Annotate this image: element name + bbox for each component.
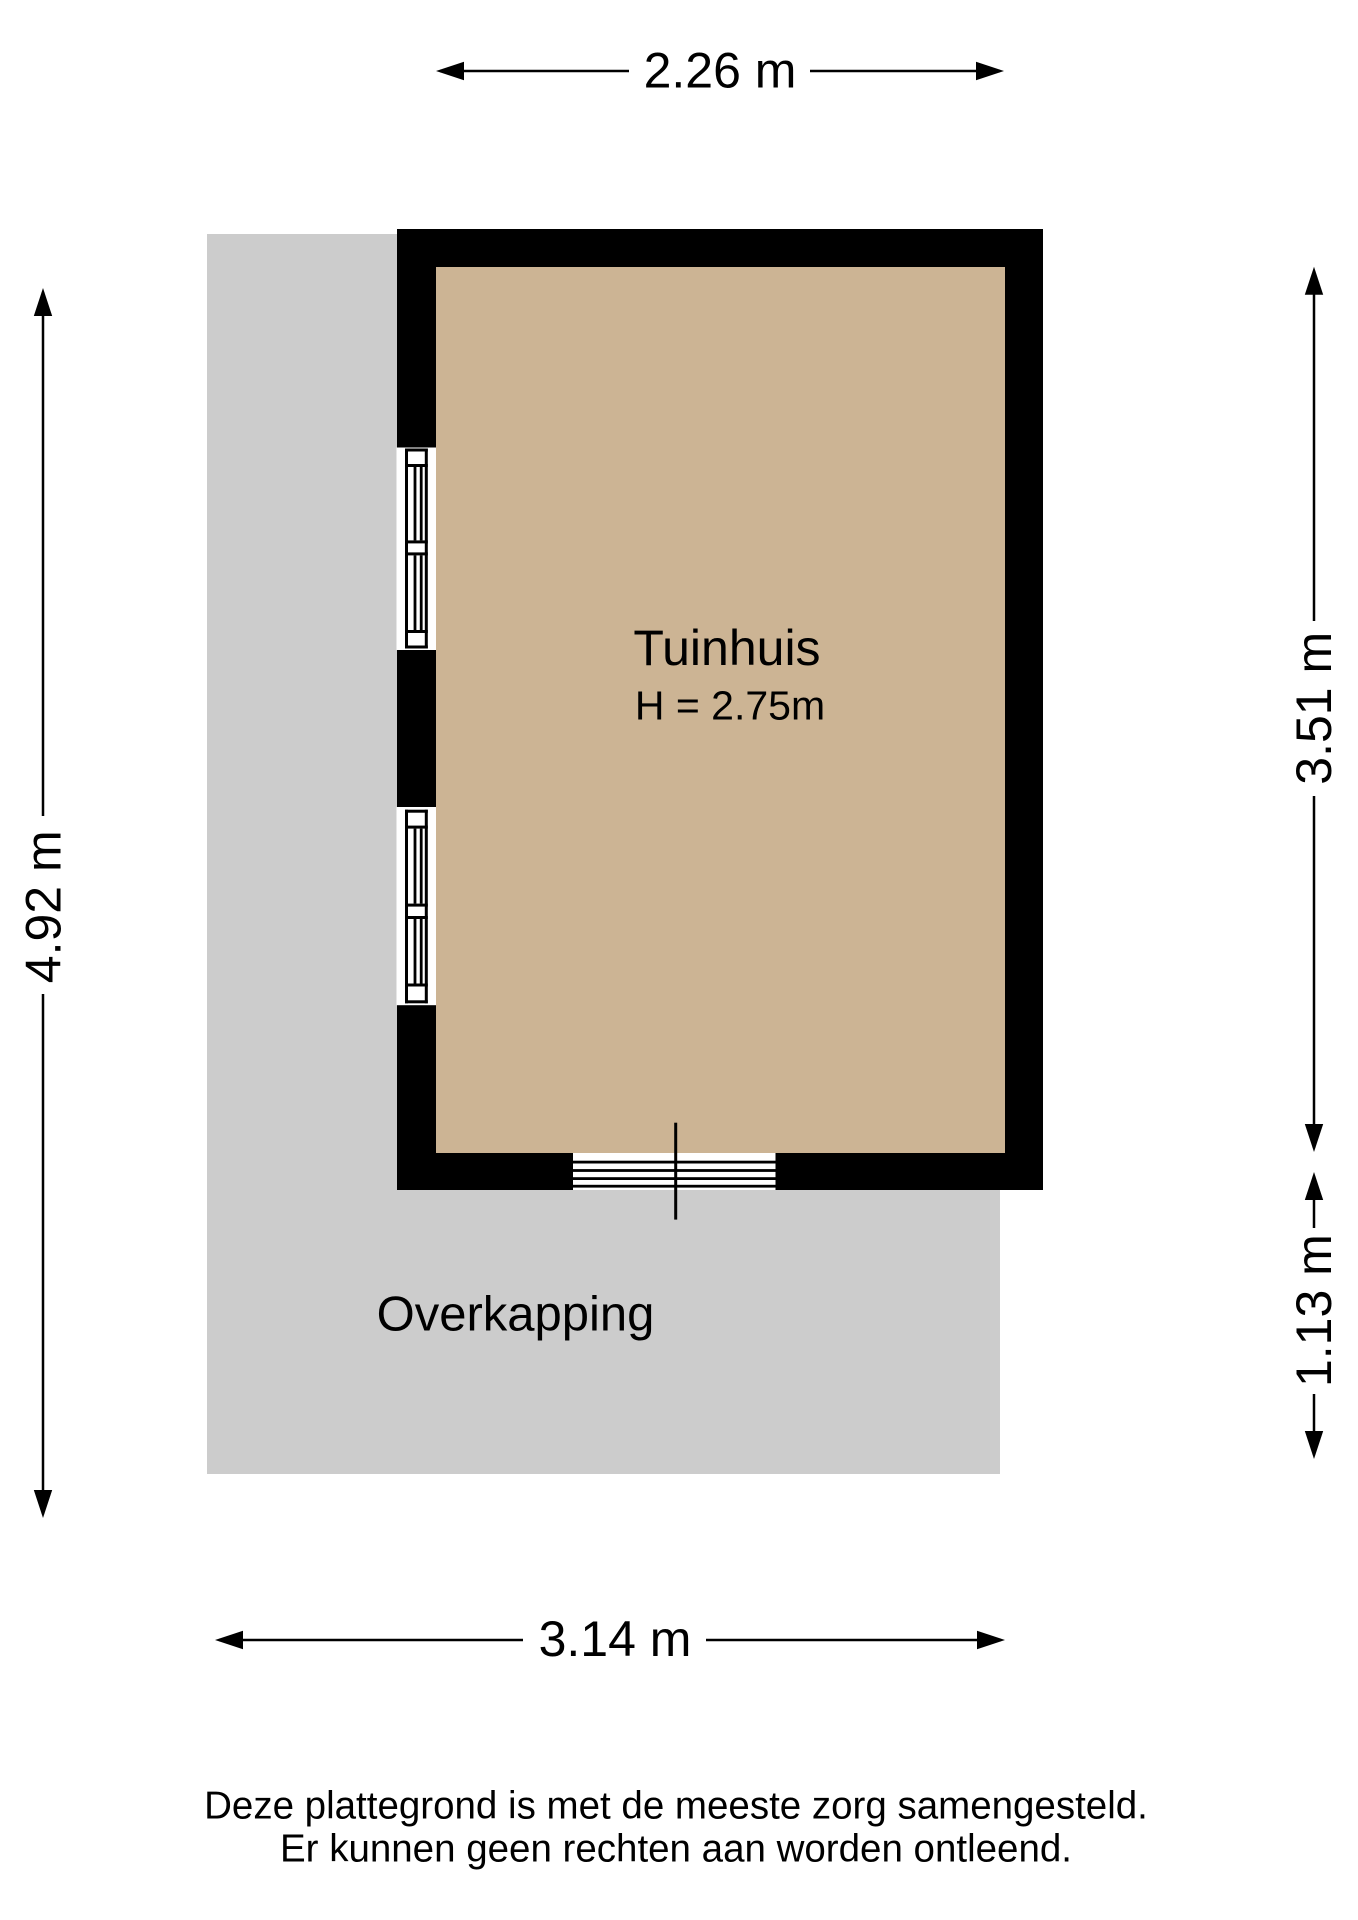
svg-text:H = 2.75m: H = 2.75m <box>635 683 825 729</box>
svg-text:4.92 m: 4.92 m <box>16 830 72 983</box>
svg-text:Tuinhuis: Tuinhuis <box>633 620 820 676</box>
svg-text:1.13 m: 1.13 m <box>1286 1234 1342 1387</box>
svg-text:3.14 m: 3.14 m <box>539 1611 692 1667</box>
svg-text:Overkapping: Overkapping <box>377 1288 655 1342</box>
svg-text:Er kunnen geen rechten aan wor: Er kunnen geen rechten aan worden ontlee… <box>280 1828 1072 1871</box>
svg-text:2.26 m: 2.26 m <box>644 43 797 99</box>
svg-text:Deze plattegrond is met de mee: Deze plattegrond is met de meeste zorg s… <box>204 1785 1148 1828</box>
svg-text:3.51 m: 3.51 m <box>1286 632 1342 785</box>
